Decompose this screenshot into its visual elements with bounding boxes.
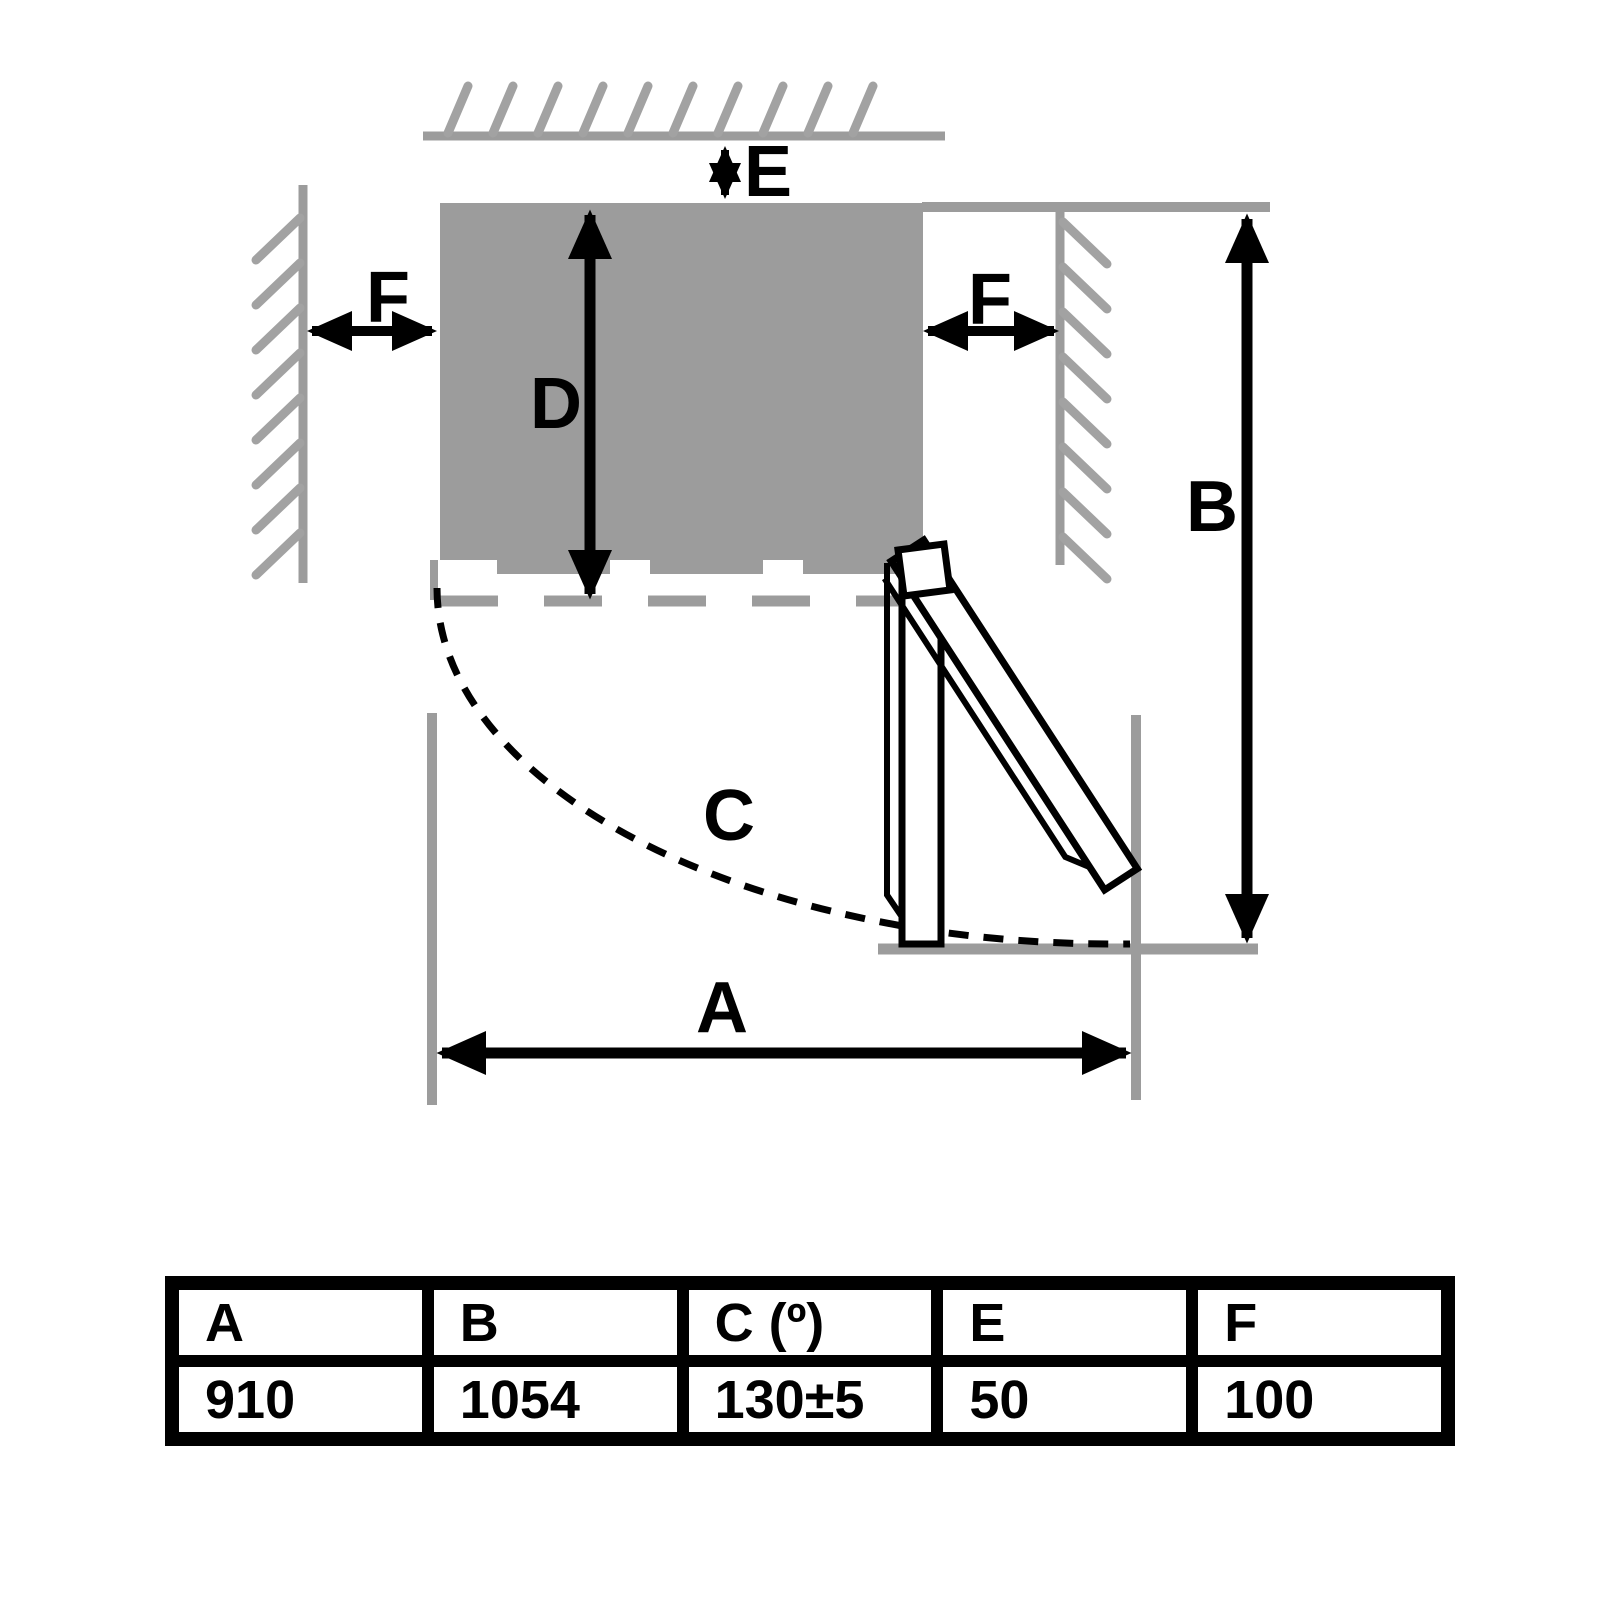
table-value-B: 1054 [428, 1361, 683, 1438]
label-E: E [744, 132, 792, 212]
label-F-right: F [968, 260, 1012, 340]
right-wall [1060, 207, 1107, 579]
right-wall-hatching [1063, 222, 1107, 579]
table-header-F: F [1192, 1284, 1447, 1361]
clearance-diagram-page: E F F D B C A A B C (º) E F 910 1054 130… [0, 0, 1600, 1599]
dimensions-table: A B C (º) E F 910 1054 130±5 50 100 [165, 1276, 1455, 1446]
label-A: A [696, 968, 748, 1048]
label-B: B [1186, 467, 1238, 547]
table-header-E: E [937, 1284, 1192, 1361]
table-header-C: C (º) [683, 1284, 938, 1361]
left-wall-hatching [256, 218, 300, 575]
table-value-A: 910 [173, 1361, 428, 1438]
label-C: C [703, 776, 755, 856]
appliance-body [440, 203, 923, 560]
top-wall [423, 86, 945, 136]
door-hinge [898, 544, 950, 596]
top-wall-hatching [448, 86, 873, 133]
table-value-C: 130±5 [683, 1361, 938, 1438]
table-value-F: 100 [1192, 1361, 1447, 1438]
label-F-left: F [366, 258, 410, 338]
table-header-A: A [173, 1284, 428, 1361]
table-header-B: B [428, 1284, 683, 1361]
left-wall [256, 185, 303, 583]
table-value-E: 50 [937, 1361, 1192, 1438]
label-D: D [530, 364, 582, 444]
